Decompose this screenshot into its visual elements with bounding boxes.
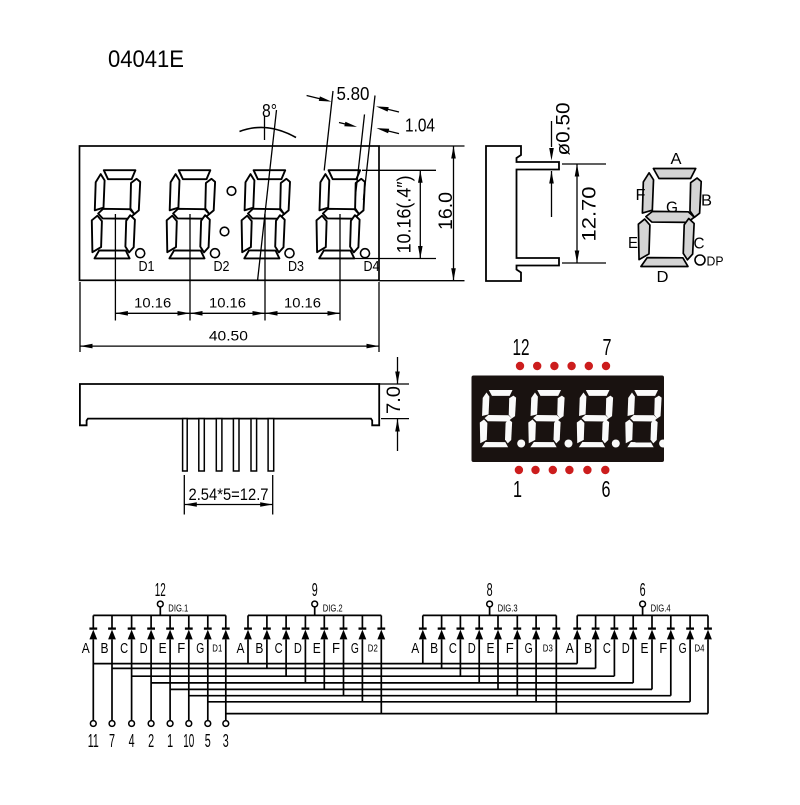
svg-text:D4: D4 — [695, 644, 705, 655]
svg-text:D1: D1 — [139, 259, 155, 275]
svg-text:C: C — [120, 641, 128, 657]
svg-text:3: 3 — [223, 730, 229, 751]
svg-text:G: G — [666, 200, 678, 217]
svg-text:D: D — [294, 641, 302, 657]
svg-text:D: D — [657, 269, 669, 286]
svg-text:10: 10 — [183, 730, 194, 751]
svg-text:DIG.1: DIG.1 — [168, 603, 188, 615]
svg-text:G: G — [525, 641, 533, 657]
svg-text:1.04: 1.04 — [405, 115, 435, 136]
svg-text:D: D — [622, 641, 630, 657]
svg-text:F: F — [332, 641, 340, 657]
svg-text:D2: D2 — [368, 644, 378, 655]
svg-text:12: 12 — [513, 334, 530, 360]
svg-text:5: 5 — [205, 730, 211, 751]
svg-text:9: 9 — [312, 579, 318, 600]
svg-text:E: E — [641, 641, 649, 657]
svg-text:7.0: 7.0 — [383, 386, 405, 414]
svg-text:D: D — [140, 641, 148, 657]
svg-text:B: B — [701, 193, 712, 210]
svg-text:DP: DP — [707, 254, 724, 269]
svg-text:DIG.2: DIG.2 — [323, 603, 343, 615]
svg-text:F: F — [506, 641, 514, 657]
svg-text:G: G — [679, 641, 687, 657]
svg-text:DIG.4: DIG.4 — [651, 603, 671, 615]
svg-text:E: E — [628, 235, 638, 252]
svg-text:G: G — [196, 641, 204, 657]
svg-text:A: A — [566, 641, 574, 657]
svg-text:6: 6 — [640, 579, 646, 600]
svg-text:E: E — [313, 641, 321, 657]
svg-text:6: 6 — [602, 476, 611, 502]
svg-text:B: B — [430, 641, 438, 657]
svg-text:D: D — [468, 641, 476, 657]
svg-text:A: A — [82, 641, 90, 657]
svg-text:ø0.50: ø0.50 — [553, 102, 575, 155]
svg-text:G: G — [351, 641, 359, 657]
svg-text:04041E: 04041E — [108, 46, 184, 73]
svg-text:B: B — [255, 641, 263, 657]
svg-text:1: 1 — [167, 730, 173, 751]
svg-text:F: F — [659, 641, 667, 657]
svg-text:10.16: 10.16 — [209, 295, 246, 310]
svg-text:7: 7 — [603, 334, 612, 360]
svg-text:2: 2 — [148, 730, 154, 751]
svg-text:7: 7 — [109, 730, 115, 751]
svg-text:DIG.3: DIG.3 — [498, 603, 518, 615]
svg-text:C: C — [694, 236, 705, 253]
svg-text:10.16(.4″): 10.16(.4″) — [394, 175, 416, 253]
svg-text:8: 8 — [487, 579, 493, 600]
svg-text:F: F — [636, 187, 646, 204]
svg-text:D3: D3 — [288, 259, 304, 275]
svg-text:A: A — [411, 641, 419, 657]
svg-text:F: F — [177, 641, 185, 657]
svg-text:4: 4 — [129, 730, 135, 751]
svg-text:B: B — [584, 641, 592, 657]
svg-text:C: C — [275, 641, 283, 657]
svg-text:12: 12 — [155, 579, 166, 600]
svg-text:E: E — [159, 641, 167, 657]
svg-text:11: 11 — [88, 730, 99, 751]
svg-text:1: 1 — [513, 476, 522, 502]
svg-text:C: C — [603, 641, 611, 657]
svg-text:16.0: 16.0 — [435, 192, 457, 230]
svg-text:10.16: 10.16 — [284, 295, 321, 310]
svg-text:D2: D2 — [214, 259, 230, 275]
svg-text:40.50: 40.50 — [209, 328, 248, 344]
svg-text:D4: D4 — [364, 259, 380, 275]
svg-text:10.16: 10.16 — [134, 295, 171, 310]
svg-text:D3: D3 — [543, 644, 553, 655]
svg-text:2.54*5=12.7: 2.54*5=12.7 — [189, 485, 269, 504]
svg-text:E: E — [487, 641, 495, 657]
svg-text:B: B — [101, 641, 109, 657]
svg-text:A: A — [671, 151, 682, 168]
svg-text:D1: D1 — [212, 644, 222, 655]
svg-text:C: C — [449, 641, 457, 657]
svg-text:5.80: 5.80 — [337, 84, 370, 104]
svg-text:A: A — [237, 641, 245, 657]
svg-text:12.70: 12.70 — [579, 186, 601, 241]
